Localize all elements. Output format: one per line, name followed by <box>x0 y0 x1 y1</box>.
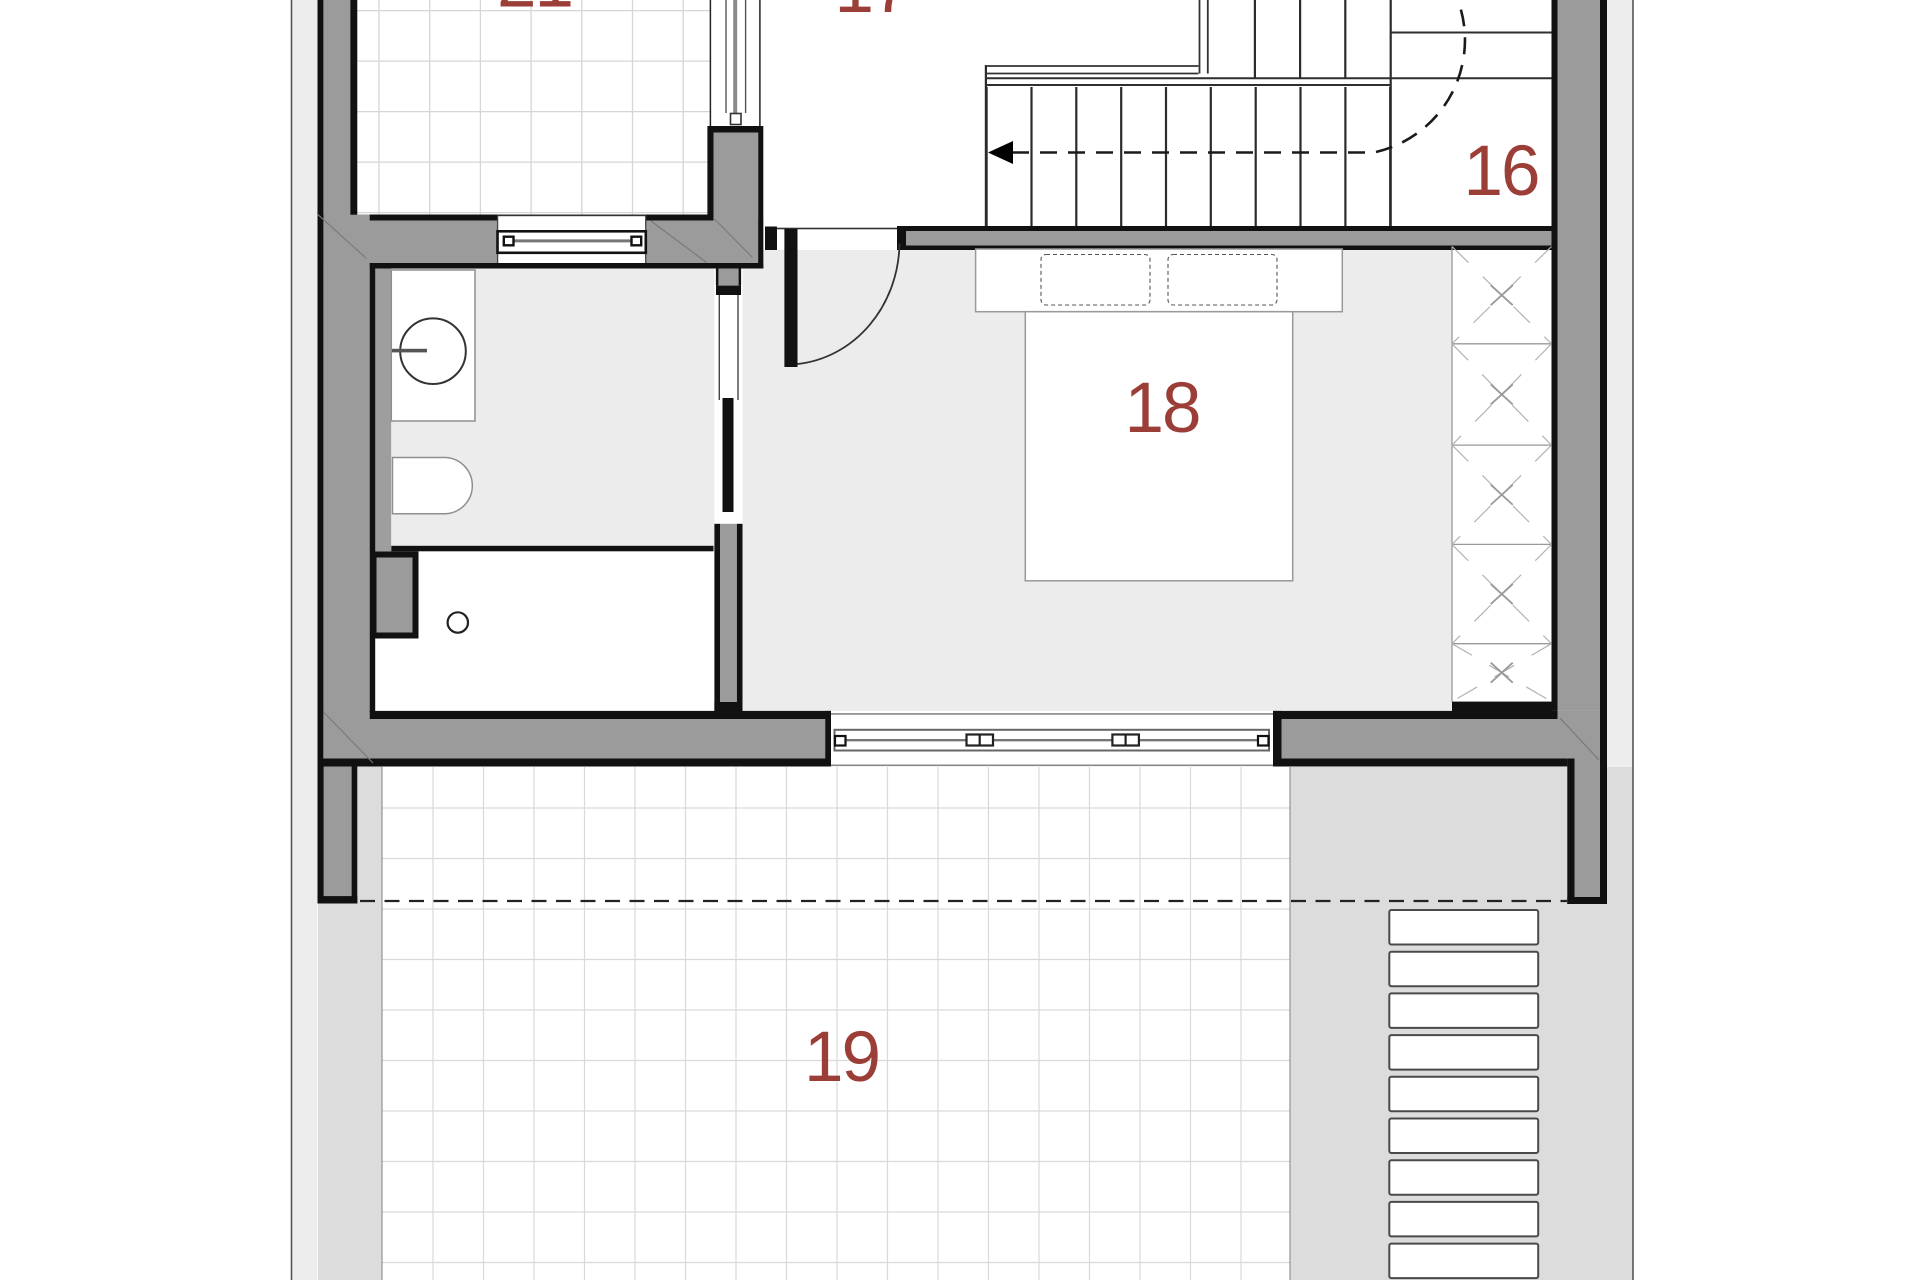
svg-text:16: 16 <box>1464 132 1539 211</box>
svg-text:19: 19 <box>804 1018 879 1097</box>
svg-text:21: 21 <box>497 0 572 23</box>
svg-text:17: 17 <box>835 0 910 28</box>
svg-text:18: 18 <box>1125 369 1200 448</box>
